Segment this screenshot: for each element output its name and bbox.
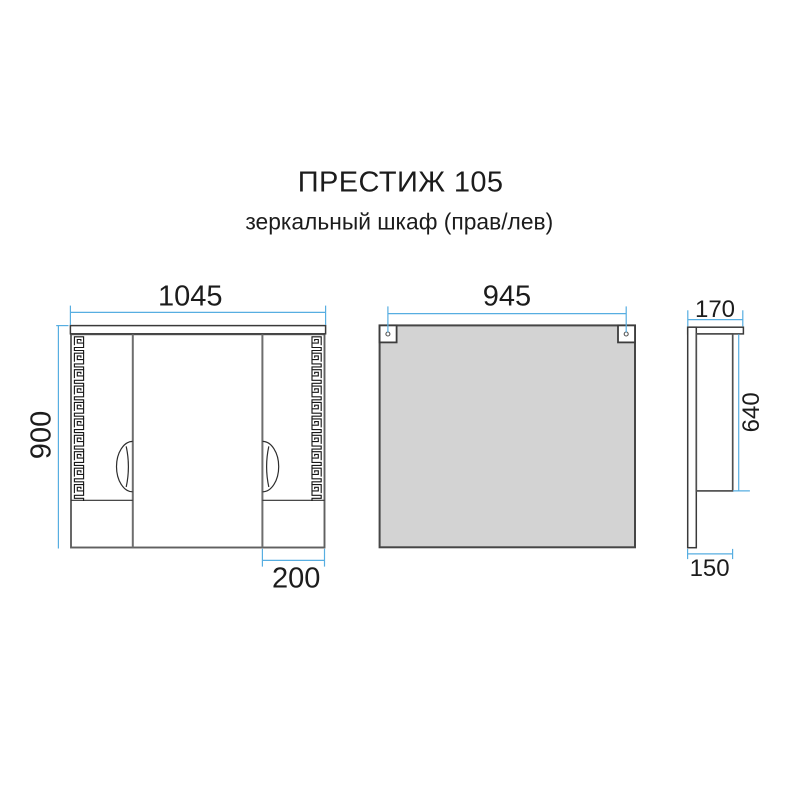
svg-text:150: 150: [690, 555, 730, 582]
svg-text:640: 640: [738, 392, 765, 432]
svg-text:200: 200: [272, 562, 320, 594]
svg-text:945: 945: [483, 281, 531, 313]
svg-text:1045: 1045: [158, 281, 223, 313]
svg-text:170: 170: [695, 296, 735, 323]
svg-text:ПРЕСТИЖ 105: ПРЕСТИЖ 105: [298, 167, 504, 199]
svg-text:900: 900: [26, 411, 58, 459]
svg-text:зеркальный шкаф (прав/лев): зеркальный шкаф (прав/лев): [245, 209, 553, 235]
